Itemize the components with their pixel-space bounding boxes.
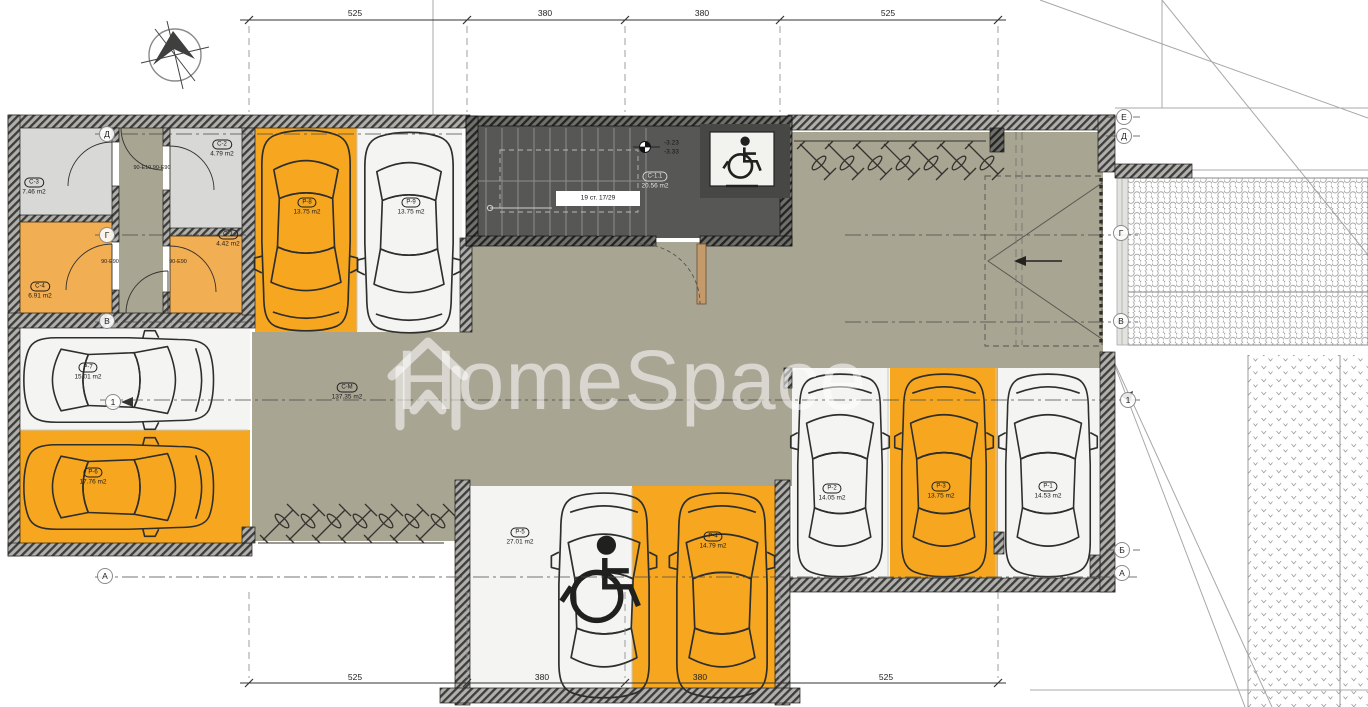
room-label-maneuver-area: С-М 137.35 m2 bbox=[332, 383, 363, 402]
dim-bottom-525-right: 525 bbox=[879, 672, 893, 682]
room-area-s4: 6.91 m2 bbox=[28, 293, 52, 301]
room-code-s2: С-2 bbox=[212, 140, 232, 150]
dim-bottom-525-left: 525 bbox=[348, 672, 362, 682]
level-upper-label: -3.23 bbox=[664, 140, 679, 147]
dim-top-380-left: 380 bbox=[538, 8, 552, 18]
room-label-s4: С-4 6.91 m2 bbox=[28, 282, 52, 301]
room-code-s1: С-1 bbox=[218, 230, 238, 240]
parking-label-p1: Р-1 14.53 m2 bbox=[1034, 482, 1061, 501]
parking-label-p9: Р-9 13.75 m2 bbox=[397, 198, 424, 217]
dim-bottom-380-left: 380 bbox=[535, 672, 549, 682]
parking-area-p6: 17.76 m2 bbox=[79, 479, 106, 487]
parking-label-p7: Р-7 15.01 m2 bbox=[74, 363, 101, 382]
axis-marker-left-v: В bbox=[99, 313, 115, 329]
parking-label-p5: Р-5 27.01 m2 bbox=[506, 528, 533, 547]
room-area-lobby: 20.56 m2 bbox=[641, 183, 668, 191]
parking-code-p9: Р-9 bbox=[401, 198, 420, 208]
room-label-s1: С-1 4.42 m2 bbox=[216, 230, 240, 249]
room-code-s4: С-4 bbox=[30, 282, 50, 292]
floor-fills bbox=[20, 126, 1103, 690]
axis-marker-right-1: 1 bbox=[1120, 392, 1136, 408]
dim-top-525-right: 525 bbox=[881, 8, 895, 18]
axis-marker-right-e: Е bbox=[1116, 109, 1132, 125]
parking-label-p3: Р-3 13.75 m2 bbox=[927, 482, 954, 501]
door-spec-corridor: 90-Е10 90-Е90 bbox=[134, 165, 171, 171]
axis-marker-left-1: 1 bbox=[105, 394, 121, 410]
room-area-s3: 7.46 m2 bbox=[22, 189, 46, 197]
room-area-maneuver: 137.35 m2 bbox=[332, 394, 363, 402]
stair-count-label: 19 ст. 17/29 bbox=[578, 194, 618, 203]
room-label-s2: С-2 4.79 m2 bbox=[210, 140, 234, 159]
door-spec-left: 90-Е90 bbox=[101, 259, 119, 265]
room-area-s2: 4.79 m2 bbox=[210, 151, 234, 159]
room-code-maneuver: С-М bbox=[336, 383, 357, 393]
door-spec-right: 90-Е90 bbox=[169, 259, 187, 265]
room-area-s1: 4.42 m2 bbox=[216, 241, 240, 249]
parking-code-p5: Р-5 bbox=[510, 528, 529, 538]
elevator bbox=[700, 124, 790, 198]
parking-code-p1: Р-1 bbox=[1038, 482, 1057, 492]
axis-marker-left-d: Д bbox=[99, 126, 115, 142]
parking-area-p1: 14.53 m2 bbox=[1034, 493, 1061, 501]
parking-label-p4: Р-4 14.79 m2 bbox=[699, 532, 726, 551]
parking-area-p8: 13.75 m2 bbox=[293, 209, 320, 217]
axis-marker-right-b: Б bbox=[1114, 542, 1130, 558]
axis-marker-right-d: Д bbox=[1116, 128, 1132, 144]
parking-label-p8: Р-8 13.75 m2 bbox=[293, 198, 320, 217]
parking-area-p4: 14.79 m2 bbox=[699, 543, 726, 551]
parking-area-p3: 13.75 m2 bbox=[927, 493, 954, 501]
dim-bottom-380-right: 380 bbox=[693, 672, 707, 682]
axis-marker-right-a: А bbox=[1114, 565, 1130, 581]
room-code-s3: С-3 bbox=[24, 178, 44, 188]
parking-area-p5: 27.01 m2 bbox=[506, 539, 533, 547]
parking-area-p2: 14.05 m2 bbox=[818, 495, 845, 503]
parking-code-p6: Р-6 bbox=[83, 468, 102, 478]
room-code-lobby: С-1.1 bbox=[643, 172, 668, 182]
north-arrow-icon bbox=[141, 21, 209, 89]
axis-marker-left-g: Г bbox=[99, 227, 115, 243]
grass-area bbox=[1248, 355, 1368, 707]
axis-marker-right-v: В bbox=[1113, 313, 1129, 329]
parking-area-p7: 15.01 m2 bbox=[74, 374, 101, 382]
room-label-s3: С-3 7.46 m2 bbox=[22, 178, 46, 197]
level-lower-label: -3.33 bbox=[664, 149, 679, 156]
entrance-ramp-grating bbox=[1117, 178, 1368, 345]
axis-marker-right-g: Г bbox=[1113, 225, 1129, 241]
parking-code-p4: Р-4 bbox=[703, 532, 722, 542]
parking-code-p7: Р-7 bbox=[78, 363, 97, 373]
axis-marker-left-a: А bbox=[97, 568, 113, 584]
parking-code-p8: Р-8 bbox=[297, 198, 316, 208]
parking-label-p6: Р-6 17.76 m2 bbox=[79, 468, 106, 487]
parking-code-p3: Р-3 bbox=[931, 482, 950, 492]
dim-top-525-left: 525 bbox=[348, 8, 362, 18]
dim-top-380-right: 380 bbox=[695, 8, 709, 18]
floor-plan-page: 525 380 380 525 525 380 380 525 Д Г В 1 … bbox=[0, 0, 1368, 707]
parking-label-p2: Р-2 14.05 m2 bbox=[818, 484, 845, 503]
parking-area-p9: 13.75 m2 bbox=[397, 209, 424, 217]
room-label-lobby: С-1.1 20.56 m2 bbox=[641, 172, 668, 191]
floor-plan-drawing bbox=[0, 0, 1368, 707]
parking-code-p2: Р-2 bbox=[822, 484, 841, 494]
